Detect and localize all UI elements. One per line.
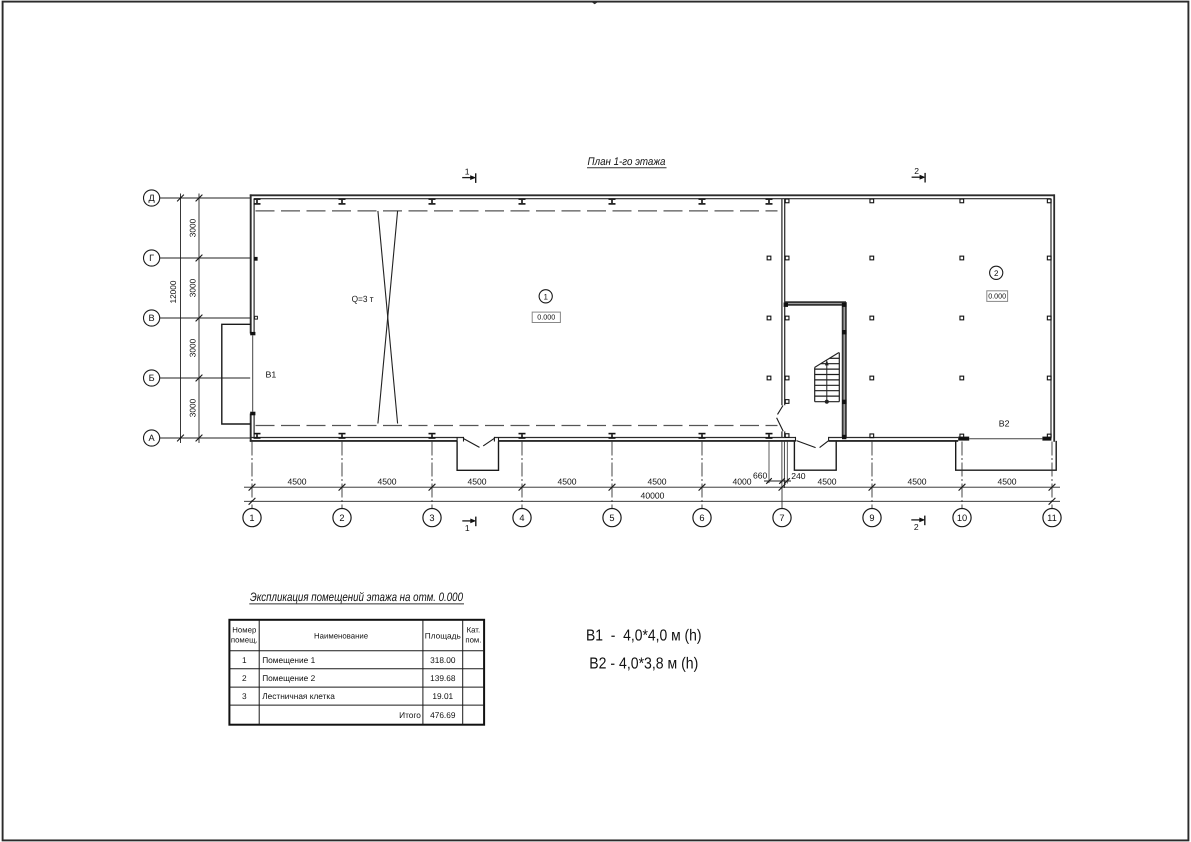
svg-text:Кат.: Кат. bbox=[467, 626, 481, 635]
svg-text:4000: 4000 bbox=[732, 476, 751, 486]
svg-text:11: 11 bbox=[1047, 513, 1057, 523]
svg-text:2: 2 bbox=[914, 166, 919, 176]
svg-text:В1: В1 bbox=[266, 370, 277, 380]
svg-text:Номер: Номер bbox=[232, 626, 257, 635]
svg-text:Б: Б bbox=[149, 373, 155, 383]
svg-text:19.01: 19.01 bbox=[432, 691, 453, 701]
svg-text:3000: 3000 bbox=[188, 338, 198, 357]
svg-text:Помещение 1: Помещение 1 bbox=[262, 655, 315, 665]
svg-text:4500: 4500 bbox=[467, 476, 486, 486]
svg-text:240: 240 bbox=[791, 471, 806, 481]
svg-text:4500: 4500 bbox=[907, 476, 926, 486]
svg-text:318.00: 318.00 bbox=[430, 655, 456, 665]
svg-text:Д: Д bbox=[148, 193, 155, 203]
svg-text:4500: 4500 bbox=[287, 476, 306, 486]
svg-text:План 1-го этажа: План 1-го этажа bbox=[588, 156, 666, 168]
svg-text:9: 9 bbox=[869, 513, 874, 523]
svg-text:помещ.: помещ. bbox=[231, 636, 258, 645]
svg-text:А: А bbox=[149, 433, 156, 443]
svg-text:2: 2 bbox=[339, 513, 344, 523]
svg-text:Помещение 2: Помещение 2 bbox=[262, 673, 315, 683]
svg-text:4: 4 bbox=[519, 513, 524, 523]
svg-text:4500: 4500 bbox=[817, 476, 836, 486]
svg-text:139.68: 139.68 bbox=[430, 673, 456, 683]
svg-text:Г: Г bbox=[149, 253, 154, 263]
svg-text:Лестничная клетка: Лестничная клетка bbox=[262, 691, 335, 701]
svg-text:Наименование: Наименование bbox=[314, 632, 368, 641]
svg-text:1: 1 bbox=[465, 523, 470, 533]
svg-text:6: 6 bbox=[699, 513, 704, 523]
svg-text:4500: 4500 bbox=[997, 476, 1016, 486]
svg-text:4500: 4500 bbox=[377, 476, 396, 486]
svg-text:2: 2 bbox=[914, 522, 919, 532]
svg-text:В1 - 4,0*4,0 м (h): В1 - 4,0*4,0 м (h) bbox=[586, 627, 702, 644]
svg-text:660: 660 bbox=[753, 471, 768, 481]
svg-text:Итого: Итого bbox=[399, 710, 421, 720]
svg-text:12000: 12000 bbox=[168, 280, 178, 303]
svg-text:3: 3 bbox=[242, 691, 247, 701]
svg-text:0.000: 0.000 bbox=[537, 312, 555, 321]
svg-text:2: 2 bbox=[994, 269, 999, 278]
svg-text:7: 7 bbox=[779, 513, 784, 523]
svg-text:10: 10 bbox=[957, 513, 967, 523]
svg-text:1: 1 bbox=[242, 655, 247, 665]
svg-text:Площадь: Площадь bbox=[425, 632, 461, 641]
svg-text:3: 3 bbox=[429, 513, 434, 523]
svg-text:В: В bbox=[149, 313, 155, 323]
svg-text:Экспликация помещений этажа на: Экспликация помещений этажа на отм. 0.00… bbox=[250, 590, 463, 604]
svg-text:40000: 40000 bbox=[641, 490, 665, 500]
svg-text:пом.: пом. bbox=[465, 636, 481, 645]
svg-text:В2 - 4,0*3,8 м (h): В2 - 4,0*3,8 м (h) bbox=[589, 655, 698, 672]
svg-text:3000: 3000 bbox=[188, 398, 198, 417]
svg-text:Q=3 т: Q=3 т bbox=[352, 294, 374, 304]
svg-text:В2: В2 bbox=[999, 418, 1010, 428]
svg-text:3000: 3000 bbox=[188, 278, 198, 297]
svg-text:3000: 3000 bbox=[188, 218, 198, 237]
svg-text:4500: 4500 bbox=[557, 476, 576, 486]
svg-text:1: 1 bbox=[543, 292, 548, 301]
svg-text:1: 1 bbox=[465, 167, 470, 177]
svg-text:1: 1 bbox=[249, 513, 254, 523]
svg-text:5: 5 bbox=[609, 513, 614, 523]
svg-text:0.000: 0.000 bbox=[988, 291, 1006, 300]
svg-text:476.69: 476.69 bbox=[430, 710, 456, 720]
svg-text:4500: 4500 bbox=[647, 476, 666, 486]
svg-text:2: 2 bbox=[242, 673, 247, 683]
